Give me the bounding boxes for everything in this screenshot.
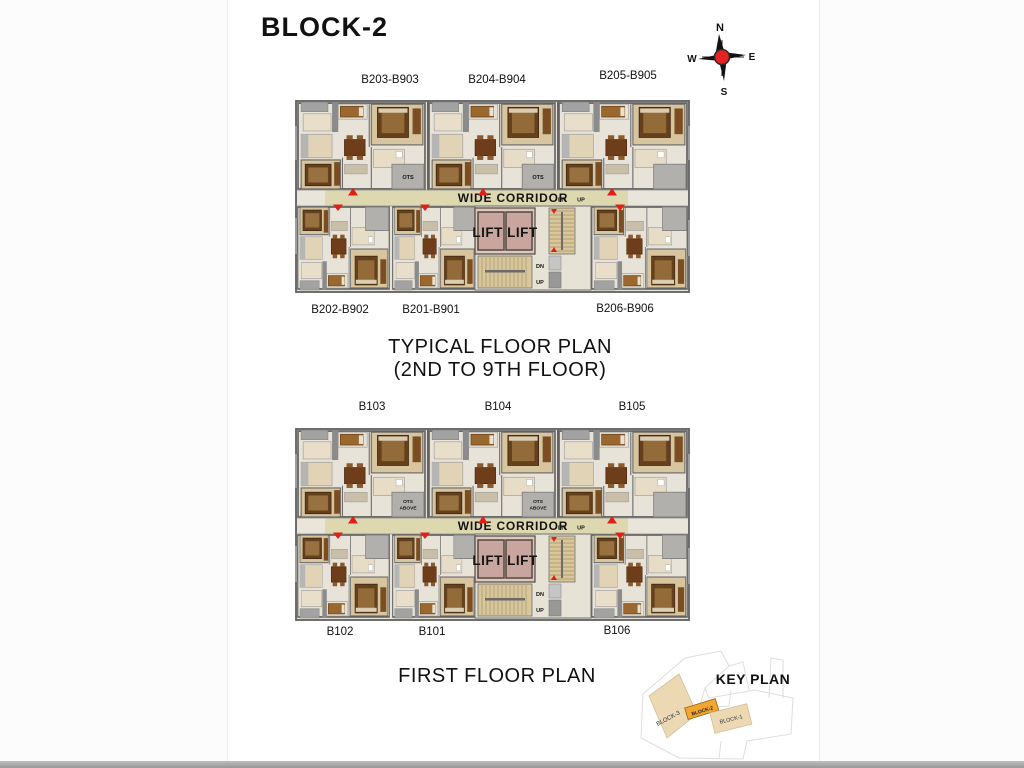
bathroom (301, 262, 321, 278)
bathroom (434, 442, 462, 459)
bathroom (596, 590, 617, 606)
wardrobe (674, 108, 682, 134)
corridor-label: WIDE CORRIDOR (458, 519, 568, 533)
stair-up-label: UP (536, 280, 544, 286)
corridor-up-label: UP (577, 526, 585, 532)
unit-label: B104 (485, 401, 512, 413)
bathroom (301, 590, 321, 606)
plan-title-line: (2ND TO 9TH FLOOR) (388, 359, 612, 382)
balcony (594, 281, 614, 290)
stair-dn-label: DN (536, 592, 544, 598)
ots-label: ABOVE (399, 506, 417, 512)
page-title: BLOCK-2 (261, 12, 388, 43)
apartment-unit (559, 430, 687, 517)
ots-room (365, 535, 388, 559)
balcony (301, 430, 328, 440)
key-plan: BLOCK-3 BLOCK-2 BLOCK-1 KEY PLAN (633, 646, 808, 762)
typical-floor-plan-title: TYPICAL FLOOR PLAN (2ND TO 9TH FLOOR) (388, 336, 612, 382)
corridor-dn-label: DN (558, 526, 566, 532)
compass-rose: N E S W (682, 14, 762, 102)
apartment-unit (393, 207, 476, 290)
compass-west-label: W (687, 54, 697, 65)
bathroom (396, 590, 414, 606)
wardrobe (380, 587, 386, 612)
compass-east-label: E (749, 52, 756, 63)
first-floor-plan: LIFT LIFTDNUPWIDE CORRIDORDNUPOTSABOVEOT… (295, 428, 690, 621)
wardrobe (380, 259, 386, 284)
apartment-unit (592, 207, 687, 290)
wardrobe (678, 587, 684, 612)
ots-room (662, 207, 686, 231)
ots-room (654, 164, 686, 189)
unit-label: B105 (619, 401, 646, 413)
ots-label: OTS (532, 175, 544, 181)
balcony (562, 430, 589, 440)
page-canvas: BLOCK-2 N E S W B203-B903 B204-B904 B205… (0, 0, 1024, 768)
ots-room (662, 535, 686, 559)
balcony (432, 430, 459, 440)
bathroom (564, 114, 592, 131)
plan-title-line: TYPICAL FLOOR PLAN (388, 336, 612, 359)
bathroom (396, 262, 414, 278)
dining-table (423, 239, 436, 254)
bathroom (303, 114, 331, 131)
balcony (301, 102, 328, 112)
unit-label: B202-B902 (311, 304, 369, 316)
stair-up-label: UP (536, 608, 544, 614)
balcony (594, 609, 614, 618)
apartment-unit (298, 207, 390, 290)
dining-table (344, 468, 365, 484)
ots-label: OTS (402, 175, 414, 181)
ots-label: OTS (533, 499, 544, 505)
plan-title-line: FIRST FLOOR PLAN (398, 665, 596, 688)
bathroom (303, 442, 331, 459)
balcony (562, 102, 589, 112)
balcony (395, 609, 412, 618)
bathroom (564, 442, 592, 459)
dining-table (423, 567, 436, 582)
balcony (432, 102, 459, 112)
unit-label: B203-B903 (361, 74, 419, 86)
compass-center-icon (715, 50, 730, 65)
dining-table (475, 140, 495, 156)
balcony (300, 609, 319, 618)
balcony (300, 281, 319, 290)
balcony (395, 281, 412, 290)
corridor-label: WIDE CORRIDOR (458, 191, 568, 205)
ots-room (654, 492, 686, 517)
wardrobe (467, 587, 472, 612)
bathroom (434, 114, 462, 131)
corridor-up-label: UP (577, 198, 585, 204)
wardrobe (467, 259, 472, 284)
dining-table (475, 468, 495, 484)
lift-label: LIFT LIFT (472, 225, 537, 240)
page-footer-bar (0, 761, 1024, 768)
wardrobe (678, 259, 684, 284)
wardrobe (413, 108, 421, 134)
typical-floor-plan: LIFT LIFTDNUPWIDE CORRIDORDNUPOTSOTS (295, 100, 690, 293)
apartment-unit (592, 535, 687, 618)
apartment-unit (559, 102, 687, 189)
unit-label: B101 (419, 626, 446, 638)
compass-south-label: S (721, 87, 728, 98)
dining-table (344, 140, 365, 156)
unit-label: B204-B904 (468, 74, 526, 86)
ots-label: ABOVE (529, 506, 547, 512)
wardrobe (543, 108, 551, 134)
unit-label: B206-B906 (596, 303, 654, 315)
ots-label: OTS (403, 499, 414, 505)
compass-north-label: N (716, 22, 724, 34)
unit-label: B103 (359, 401, 386, 413)
wardrobe (543, 436, 551, 462)
key-plan-title: KEY PLAN (716, 671, 791, 687)
unit-label: B201-B901 (402, 304, 460, 316)
dining-table (606, 468, 627, 484)
unit-label: B205-B905 (599, 70, 657, 82)
dining-table (331, 239, 346, 254)
ots-room (365, 207, 388, 231)
dining-table (627, 239, 643, 254)
apartment-unit (298, 535, 390, 618)
unit-label: B102 (327, 626, 354, 638)
dining-table (627, 567, 643, 582)
dining-table (331, 567, 346, 582)
first-floor-plan-title: FIRST FLOOR PLAN (398, 665, 596, 688)
bathroom (596, 262, 617, 278)
apartment-unit (393, 535, 476, 618)
unit-label: B106 (604, 625, 631, 637)
wardrobe (413, 436, 421, 462)
stair-dn-label: DN (536, 264, 544, 270)
wardrobe (674, 436, 682, 462)
lift-label: LIFT LIFT (472, 553, 537, 568)
dining-table (606, 140, 627, 156)
corridor-dn-label: DN (558, 198, 566, 204)
